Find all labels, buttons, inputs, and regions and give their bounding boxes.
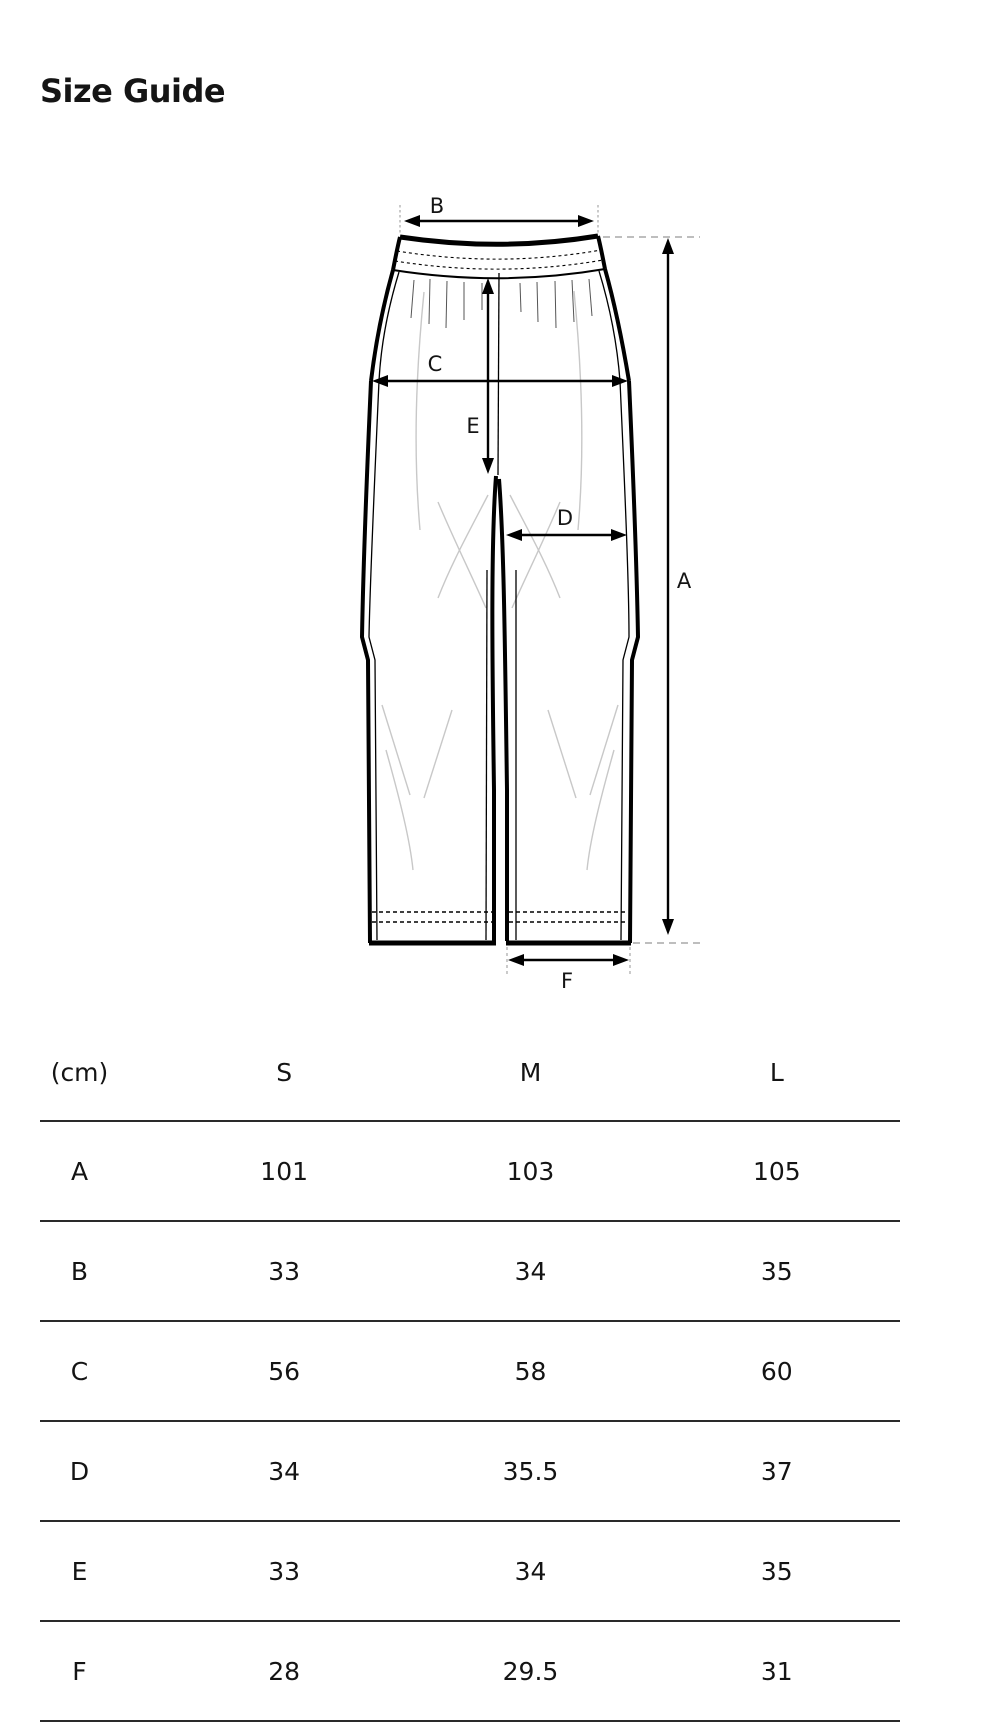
dim-label-c: C — [428, 352, 443, 376]
dim-arrow-c — [372, 375, 628, 387]
crease-lines — [382, 291, 618, 870]
unit-header: (cm) — [40, 1058, 161, 1087]
dim-label-e: E — [466, 414, 479, 438]
cell-value: 103 — [407, 1157, 653, 1186]
col-header-m: M — [407, 1058, 653, 1087]
row-label: F — [40, 1657, 161, 1686]
guide-lines — [400, 205, 700, 977]
table-row: A 101 103 105 — [40, 1120, 900, 1220]
col-header-s: S — [161, 1058, 407, 1087]
cell-value: 56 — [161, 1357, 407, 1386]
table-row: B 33 34 35 — [40, 1220, 900, 1320]
pants-flat-sketch: B C E D A F — [0, 150, 1000, 1000]
row-label: A — [40, 1157, 161, 1186]
row-label: D — [40, 1457, 161, 1486]
cell-value: 34 — [407, 1557, 653, 1586]
col-header-l: L — [654, 1058, 900, 1087]
size-table: (cm) S M L A 101 103 105 B 33 34 35 C 56… — [40, 1024, 900, 1722]
cell-value: 29.5 — [407, 1657, 653, 1686]
row-label: C — [40, 1357, 161, 1386]
table-row: C 56 58 60 — [40, 1320, 900, 1420]
hem-stitching — [372, 912, 628, 922]
dim-label-d: D — [557, 506, 573, 530]
page-title: Size Guide — [40, 72, 225, 110]
dim-arrow-f — [508, 954, 629, 966]
cell-value: 35.5 — [407, 1457, 653, 1486]
row-label: E — [40, 1557, 161, 1586]
cell-value: 60 — [654, 1357, 900, 1386]
dim-label-a: A — [677, 569, 692, 593]
cell-value: 35 — [654, 1257, 900, 1286]
table-row: D 34 35.5 37 — [40, 1420, 900, 1520]
dim-arrow-e — [482, 278, 494, 474]
dim-arrow-a — [662, 238, 674, 935]
dim-arrow-d — [506, 529, 627, 541]
cell-value: 33 — [161, 1557, 407, 1586]
size-guide-page: Size Guide — [0, 0, 1000, 1727]
cell-value: 33 — [161, 1257, 407, 1286]
pants-diagram: B C E D A F — [0, 150, 1000, 1000]
cell-value: 101 — [161, 1157, 407, 1186]
table-row: E 33 34 35 — [40, 1520, 900, 1620]
waistband — [393, 236, 605, 278]
table-header-row: (cm) S M L — [40, 1024, 900, 1120]
cell-value: 35 — [654, 1557, 900, 1586]
gather-lines — [411, 279, 592, 328]
cell-value: 37 — [654, 1457, 900, 1486]
cell-value: 58 — [407, 1357, 653, 1386]
dim-label-b: B — [430, 194, 444, 218]
cell-value: 34 — [407, 1257, 653, 1286]
pants-outline — [362, 269, 638, 943]
cell-value: 105 — [654, 1157, 900, 1186]
cell-value: 31 — [654, 1657, 900, 1686]
cell-value: 34 — [161, 1457, 407, 1486]
cell-value: 28 — [161, 1657, 407, 1686]
dim-label-f: F — [561, 969, 573, 993]
row-label: B — [40, 1257, 161, 1286]
table-row: F 28 29.5 31 — [40, 1620, 900, 1722]
